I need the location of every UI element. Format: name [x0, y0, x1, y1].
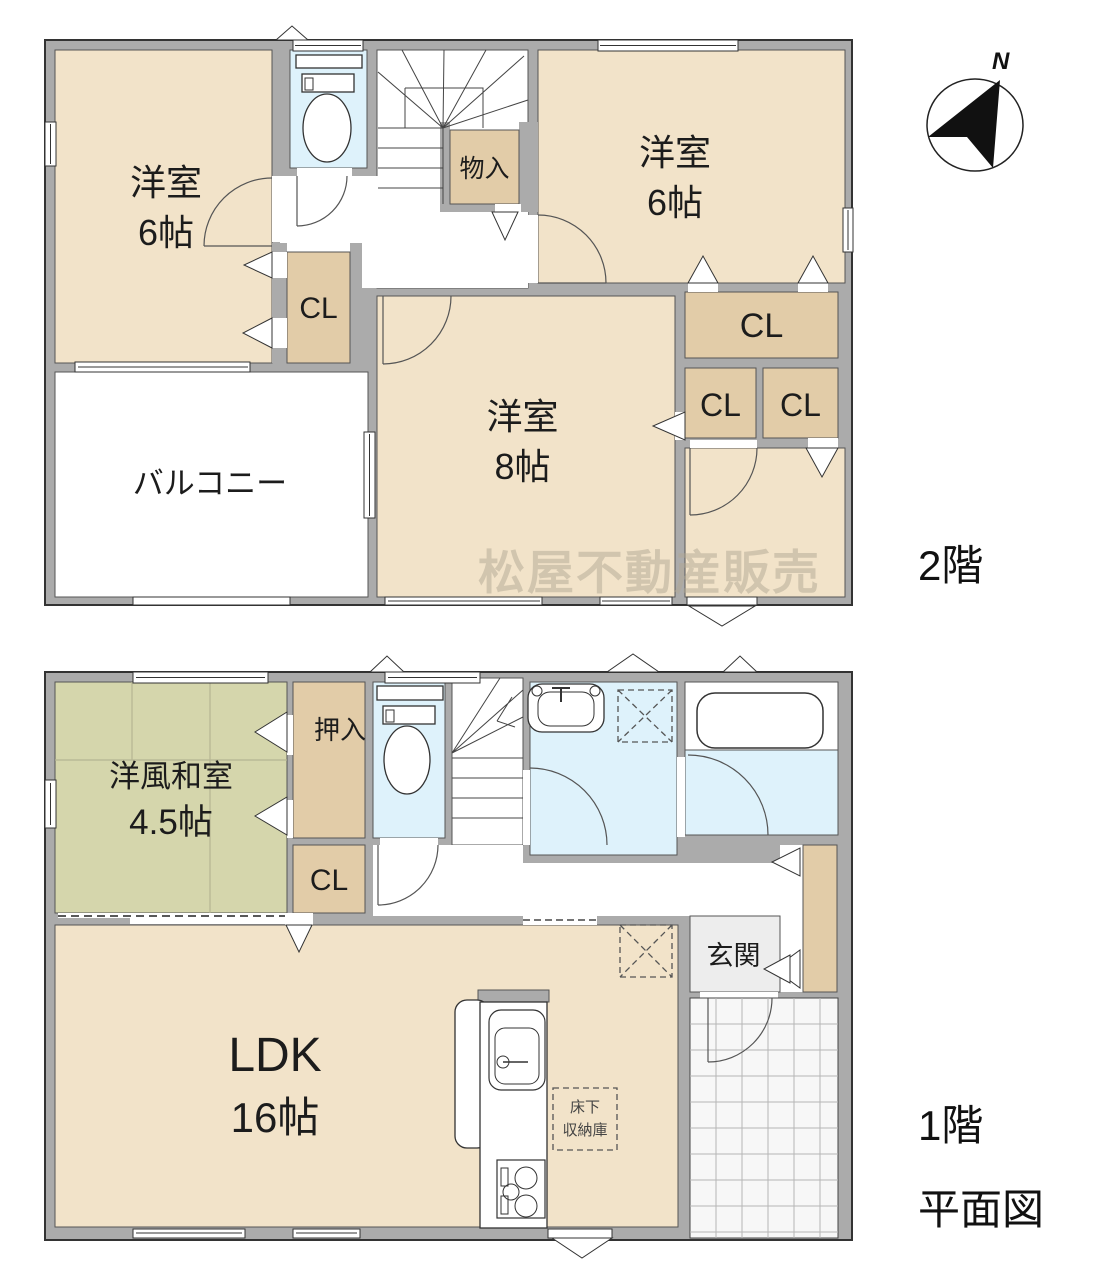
- label-closet-hall: CL: [287, 288, 350, 330]
- compass: [927, 79, 1023, 171]
- bathtub: [697, 693, 823, 748]
- label-closet-small-left: CL: [685, 383, 756, 428]
- label-storage-monoiri: 物入: [450, 152, 519, 187]
- oshiire-text: 押入: [314, 714, 344, 747]
- room-size: 4.5帖: [55, 798, 287, 847]
- label-closet-1f: CL: [293, 860, 365, 902]
- room-size: 6帖: [540, 178, 810, 228]
- floor1-hall-east: [523, 863, 800, 916]
- wall-fix: [350, 243, 362, 363]
- label-floor2: 2階: [918, 532, 983, 593]
- label-compass-north: N: [992, 48, 1009, 76]
- floor1-hall-west: [373, 845, 523, 916]
- label-bedroom-left: 洋室 6帖: [60, 158, 272, 259]
- room-name: 洋室: [540, 128, 810, 178]
- label-japanese-room: 洋風和室 4.5帖: [55, 755, 287, 847]
- label-balcony: バルコニー: [80, 462, 340, 505]
- floor1-stair-area: [452, 678, 523, 845]
- room-name: 洋室: [60, 158, 272, 208]
- outswing-door-mark: [689, 606, 755, 626]
- wall-fix: [519, 122, 538, 212]
- label-closet-small-right: CL: [763, 383, 838, 428]
- washbasin: [528, 684, 604, 732]
- floor1-oshiire: [293, 682, 365, 838]
- underfloor-line2: 収納庫: [550, 1119, 620, 1142]
- label-bedroom-main: 洋室 8帖: [385, 392, 660, 493]
- entrance-porch: [690, 998, 838, 1238]
- shoe-cabinet: [803, 845, 837, 992]
- room-name: 洋室: [385, 392, 660, 442]
- watermark: 松屋不動産販売: [478, 534, 821, 603]
- label-ldk: LDK 16帖: [95, 1022, 455, 1148]
- room-name: 洋風和室: [55, 755, 287, 798]
- wall-fix: [440, 122, 450, 212]
- label-bedroom-right: 洋室 6帖: [540, 128, 810, 229]
- label-floor1: 1階: [918, 1092, 983, 1153]
- vent-triangle: [276, 26, 308, 40]
- label-entrance: 玄関: [687, 938, 780, 976]
- floor-plan-canvas: 洋室 6帖 洋室 6帖 洋室 8帖 物入 CL CL CL CL バルコニー 2…: [0, 0, 1100, 1280]
- wall-fix: [55, 918, 130, 924]
- floor1-bathroom: [685, 750, 838, 835]
- underfloor-line1: 床下: [550, 1096, 620, 1119]
- label-closet-large: CL: [685, 303, 838, 351]
- label-underfloor-storage: 床下 収納庫: [550, 1096, 620, 1143]
- label-floor1-sub: 平面図: [918, 1176, 1044, 1237]
- label-oshiire: 押入: [293, 712, 365, 748]
- room-size: 16帖: [95, 1089, 455, 1148]
- closet-door-gap: [285, 913, 313, 925]
- room-size: 8帖: [385, 442, 660, 492]
- room-name: LDK: [95, 1022, 455, 1089]
- room-size: 6帖: [60, 208, 272, 258]
